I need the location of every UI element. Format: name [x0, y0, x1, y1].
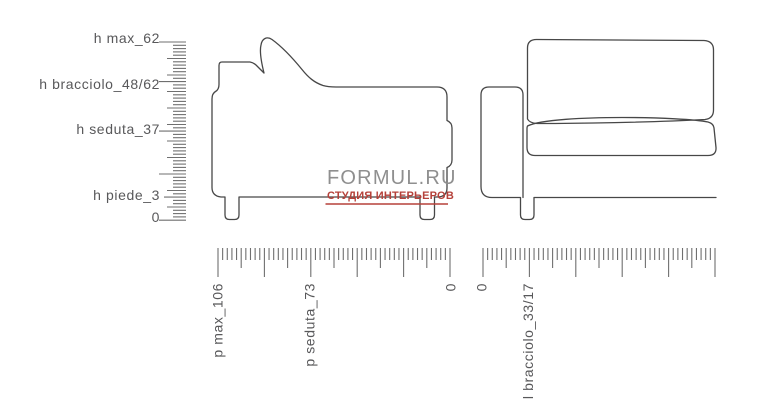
diagram-graphics [0, 0, 774, 413]
height-label-h-max: h max_62 [94, 31, 160, 45]
height-ruler-ticks [159, 42, 186, 220]
armrest-and-base-outline [481, 87, 716, 220]
depth-label-p-max: p max_106 [211, 283, 226, 358]
depth-ruler-ticks [218, 248, 450, 277]
height-label-h-seduta: h seduta_37 [76, 122, 160, 136]
height-label-h-piede: h piede_3 [93, 188, 160, 202]
width-label-l-bracciolo: l bracciolo_33/17 [521, 283, 536, 399]
watermark-brand: FORMUL.RU [327, 167, 457, 189]
width-ruler-ticks [483, 248, 715, 277]
watermark-tagline: СТУДИЯ ИНТЕРЬЕРОВ [327, 190, 454, 202]
height-label-zero: 0 [152, 210, 160, 224]
width-label-zero: 0 [474, 283, 489, 291]
depth-label-zero: 0 [443, 283, 458, 291]
furniture-dimension-diagram: h max_62 h bracciolo_48/62 h seduta_37 h… [0, 0, 774, 413]
sofa-front-view-outline [481, 40, 716, 220]
depth-label-p-seduta: p seduta_73 [303, 283, 318, 367]
back-cushion-outline [528, 40, 714, 124]
height-label-h-bracciolo: h bracciolo_48/62 [39, 77, 160, 91]
